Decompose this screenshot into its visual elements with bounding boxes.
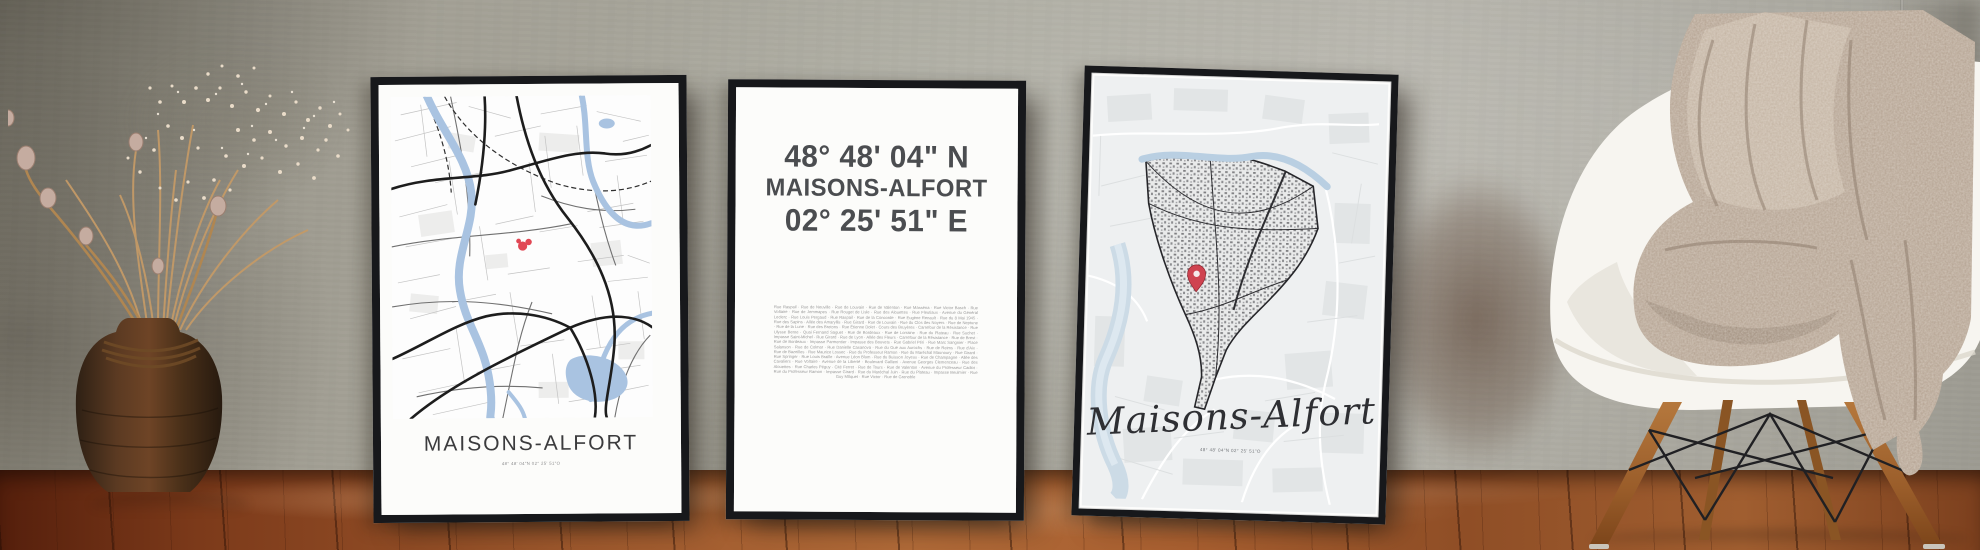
latitude-text: 48° 48' 04" N [741,139,1012,175]
coordinates-block: 48° 48' 04" N MAISONS-ALFORT 02° 25' 51"… [735,139,1018,239]
map-graphic [391,95,653,419]
street-name-list: Rue Raspail · Rue de Neuville · Rue de L… [774,305,978,381]
poster-mat: MAISONS-ALFORT 48° 48' 04"N 02° 25' 51"O [379,83,682,515]
poster-mat: 48° 48' 04" N MAISONS-ALFORT 02° 25' 51"… [734,87,1018,512]
poster-map-classic: MAISONS-ALFORT 48° 48' 04"N 02° 25' 51"O [370,75,689,523]
city-name-text: MAISONS-ALFORT [740,174,1014,204]
poster-coordinates-typographic: 48° 48' 04" N MAISONS-ALFORT 02° 25' 51"… [726,79,1026,521]
longitude-text: 02° 25' 51" E [741,203,1012,239]
room-scene: { "posters": { "left": { "title": "MAISO… [0,0,1980,550]
city-map-classic [391,95,653,419]
poster-left-coordinates: 48° 48' 04"N 02° 25' 51"O [423,461,639,467]
poppy-pods [8,110,226,274]
rustic-vase-pot [76,318,222,492]
eames-style-chair [1545,0,1980,550]
dried-flower-vase [8,30,358,505]
poster-map-boundary: Maisons-Alfort 48° 48' 04"N 02° 25' 51"O [1071,65,1398,524]
poster-left-title: MAISONS-ALFORT [381,431,681,457]
